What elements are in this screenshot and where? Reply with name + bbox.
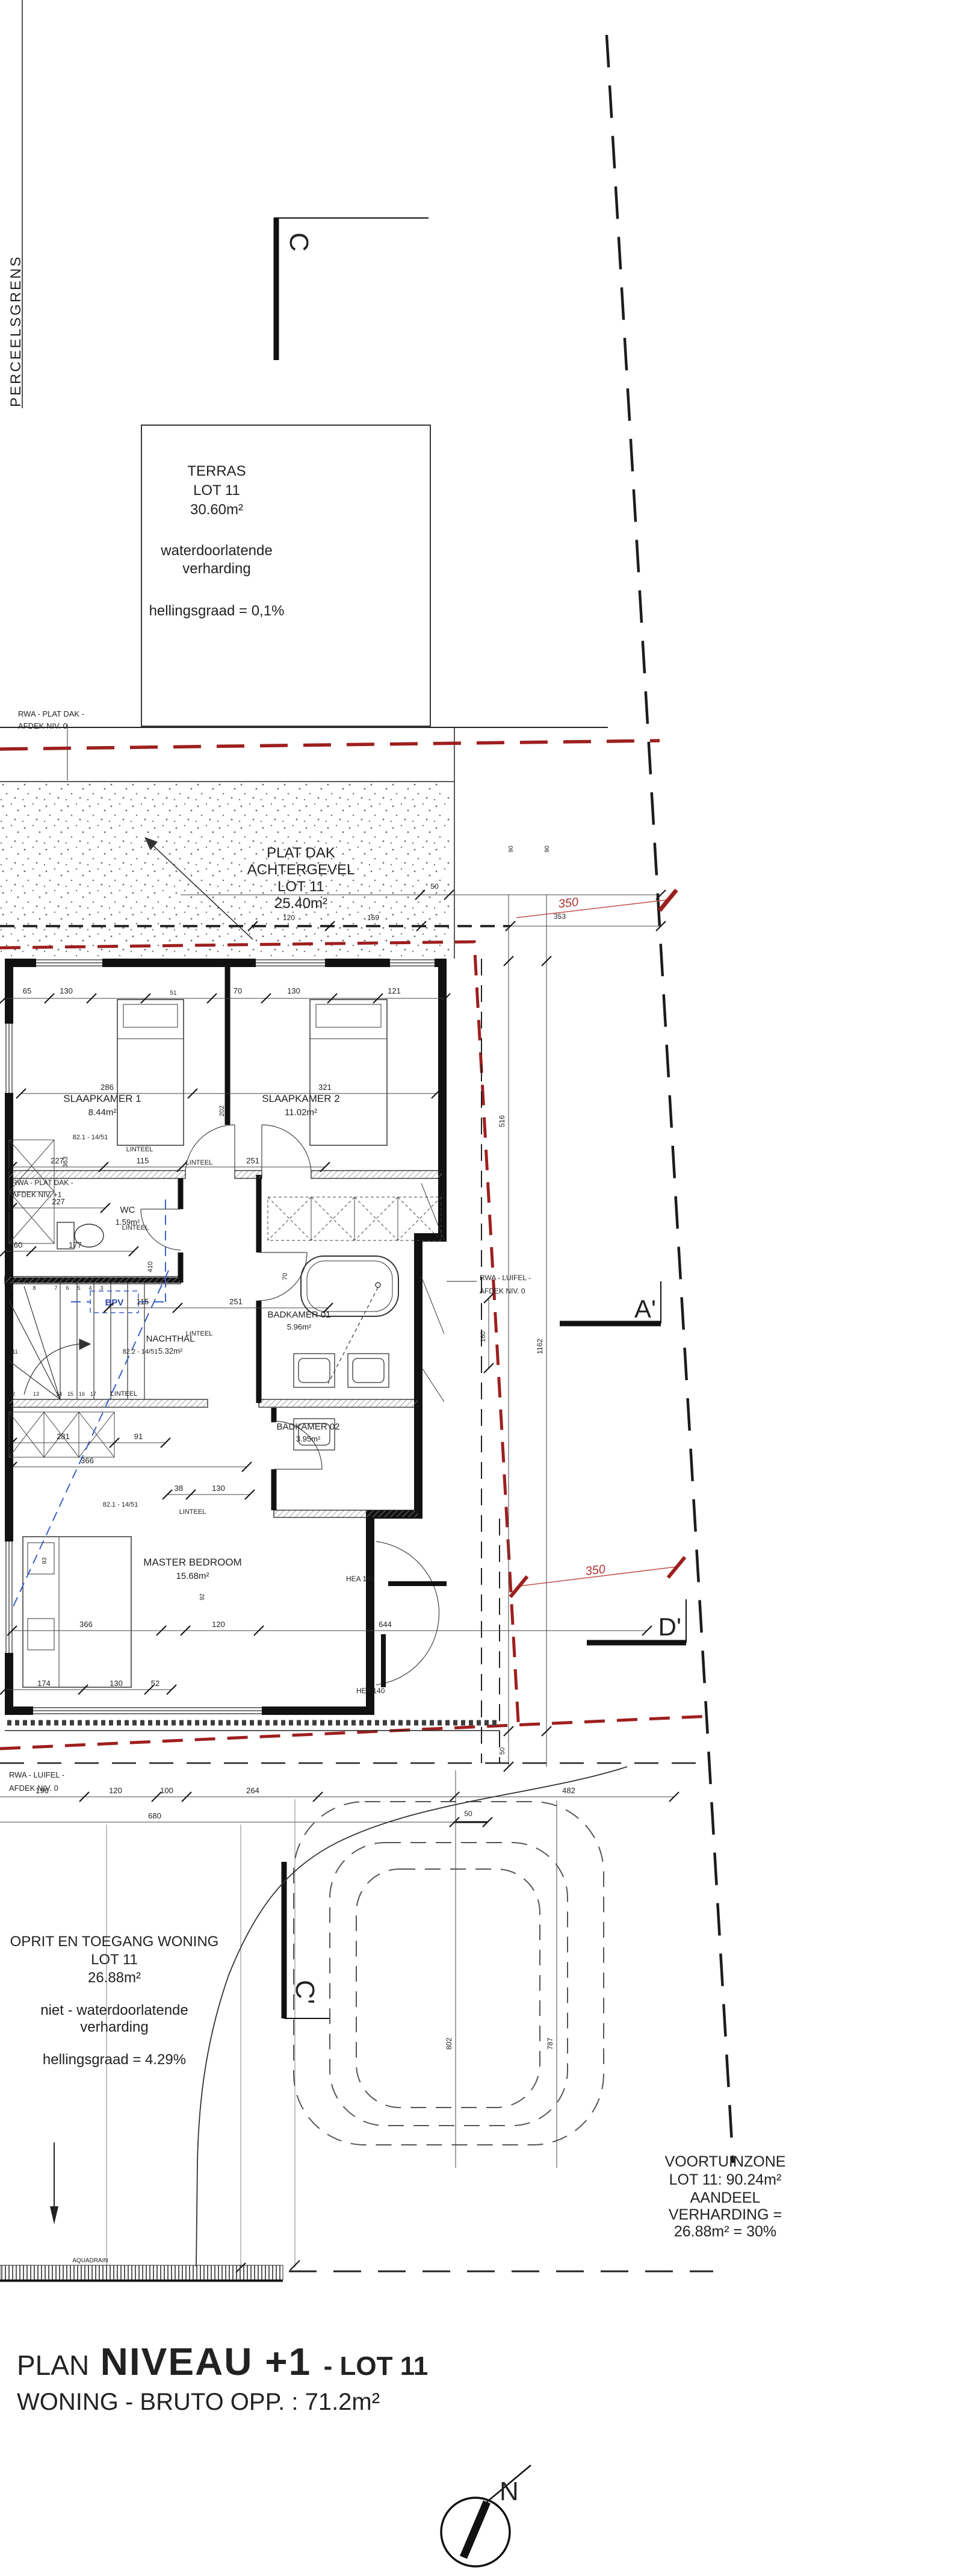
dim: 70 xyxy=(282,1273,289,1280)
exterior-walls xyxy=(4,957,442,1716)
oprit-area: 26.88m² xyxy=(88,1970,141,1986)
dim: 321 xyxy=(318,1083,332,1092)
dim: 51 xyxy=(170,990,177,997)
dim: 115 xyxy=(137,1156,149,1165)
room-wc: WC xyxy=(120,1205,135,1215)
voortuin-l1: VOORTUINZONE xyxy=(665,2153,786,2170)
property-dashed-line xyxy=(607,35,733,2163)
room-badkamer01: BADKAMER 01 xyxy=(267,1310,330,1320)
room-badkamer01-area: 5.96m² xyxy=(287,1322,312,1331)
bed-slaapkamer2 xyxy=(310,1000,387,1145)
dim: 50 xyxy=(430,882,439,891)
linteel-1: LINTEEL xyxy=(126,1146,153,1153)
sheet-title: PLAN NIVEAU +1 - LOT 11 xyxy=(17,2340,428,2383)
red-dim-350-upper: 350 xyxy=(516,890,676,918)
stair-num: 5 xyxy=(77,1285,80,1291)
linteel-3: LINTEEL xyxy=(122,1224,149,1231)
dim: 160 xyxy=(480,1331,487,1342)
aquadrain-strip xyxy=(0,2265,283,2280)
red-dim-350-lower: 350 xyxy=(510,1557,685,1597)
dim: 281 xyxy=(57,1432,70,1441)
red-350-upper: 350 xyxy=(558,895,579,910)
platdak-lot: LOT 11 xyxy=(277,879,324,895)
dim: 366 xyxy=(81,1456,94,1465)
terras-lot: LOT 11 xyxy=(193,482,240,499)
title-prefix: PLAN xyxy=(17,2350,89,2381)
oprit-note1: niet - waterdoorlatende xyxy=(40,2002,188,2018)
dim: 91 xyxy=(134,1432,143,1441)
title-suffix: - LOT 11 xyxy=(324,2351,429,2381)
dim: 177 xyxy=(69,1240,82,1249)
stair-num: 15 xyxy=(67,1391,73,1397)
stair-num: 13 xyxy=(33,1391,39,1397)
dim: 93 xyxy=(42,1557,48,1564)
hea-label-2: HEA 140 xyxy=(356,1687,385,1695)
dim: 130 xyxy=(110,1679,123,1688)
stair-num: 17 xyxy=(90,1391,96,1397)
dim: 169 xyxy=(367,913,379,922)
dim: 264 xyxy=(246,1786,259,1795)
stair-direction-arrow xyxy=(79,1339,90,1349)
terras-note2: verharding xyxy=(182,561,250,577)
stair-num: 14 xyxy=(56,1391,62,1397)
voortuin-l4: VERHARDING = xyxy=(669,2206,782,2223)
red-350-lower: 350 xyxy=(584,1563,606,1578)
floor-plan-canvas: PERCEELSGRENS C TERRAS LOT 11 30.60m² wa… xyxy=(0,0,975,2576)
rwa-luifel-bottom-1: RWA - LUIFEL - xyxy=(9,1770,64,1779)
dim: 52 xyxy=(151,1679,159,1688)
oprit-lot: LOT 11 xyxy=(91,1952,138,1968)
room-slaapkamer1: SLAAPKAMER 1 xyxy=(63,1093,141,1104)
platdak-area: 25.40m² xyxy=(274,895,327,912)
room-slaapkamer2: SLAAPKAMER 2 xyxy=(262,1093,339,1104)
bpv-label: BPV xyxy=(105,1298,124,1308)
oprit-note2: verharding xyxy=(80,2019,148,2035)
platdak-name: PLAT DAK xyxy=(267,845,335,861)
sheet-subtitle: WONING - BRUTO OPP. : 71.2m² xyxy=(17,2389,380,2415)
terras-name: TERRAS xyxy=(187,463,246,479)
level-mark-1: 82.1 - 14/51 xyxy=(73,1134,108,1141)
dim: 115 xyxy=(137,1297,149,1306)
linteel-4: LINTEEL xyxy=(186,1330,213,1337)
dim: 227 xyxy=(52,1197,65,1206)
driveway-edge-curve xyxy=(196,1767,627,2266)
section-letter-c: C xyxy=(284,232,314,252)
voortuin-l3: AANDEEL xyxy=(690,2189,761,2206)
dim: 482 xyxy=(562,1786,575,1795)
rwa-niv1-line1: RWA - PLAT DAK - xyxy=(12,1178,73,1187)
dim: 196 xyxy=(36,1786,49,1795)
north-label: N xyxy=(500,2477,519,2506)
stair-num: 8 xyxy=(32,1285,36,1291)
stair-num: 3 xyxy=(100,1285,103,1291)
rwa-luifel-right-1: RWA - LUIFEL - xyxy=(480,1274,531,1282)
interior-walls xyxy=(5,963,274,1510)
perceelsgrens-label: PERCEELSGRENS xyxy=(8,255,24,407)
section-letter-d-prime: D' xyxy=(658,1613,681,1641)
level-mark-3: 82.1 - 14/51 xyxy=(103,1501,138,1508)
voortuin-l2: LOT 11: 90.24m² xyxy=(669,2171,782,2188)
terras-note1: waterdoorlatende xyxy=(160,543,272,559)
dim: 90 xyxy=(508,845,515,853)
slope-arrow xyxy=(50,2142,58,2224)
dim: 50 xyxy=(464,1809,472,1818)
level-mark-2: 82.2 - 14/51 xyxy=(123,1348,158,1355)
title-main: NIVEAU +1 xyxy=(101,2340,312,2383)
rwa-top-line2: AFDEK NIV. 0 xyxy=(18,721,67,730)
turning-template xyxy=(294,1802,604,2145)
hea-label-1: HEA 140 xyxy=(346,1575,375,1583)
plan-sheet: PERCEELSGRENS C TERRAS LOT 11 30.60m² wa… xyxy=(0,0,975,2576)
room-badkamer02: BADKAMER 02 xyxy=(276,1422,339,1432)
linteel-5: LINTEEL xyxy=(111,1390,138,1398)
dim: 353 xyxy=(554,912,566,921)
room-slaapkamer1-area: 8.44m² xyxy=(88,1107,117,1118)
rwa-top-line1: RWA - PLAT DAK - xyxy=(18,709,84,718)
flat-roof-region xyxy=(0,724,608,959)
room-nachthal-area: 5.32m² xyxy=(158,1346,183,1355)
dim: 100 xyxy=(160,1786,173,1795)
oprit-labels: OPRIT EN TOEGANG WONING LOT 11 26.88m² n… xyxy=(10,1934,219,2068)
room-master: MASTER BEDROOM xyxy=(143,1557,241,1568)
dim: 366 xyxy=(79,1620,93,1629)
stair-num: 12 xyxy=(9,1391,15,1397)
room-master-area: 15.68m² xyxy=(176,1571,209,1581)
dim: 174 xyxy=(37,1679,51,1688)
closets xyxy=(9,1140,441,1457)
platdak-sub: ACHTERGEVEL xyxy=(247,862,355,878)
stair-num: 9 xyxy=(10,1285,13,1291)
dim: 60 xyxy=(14,1240,22,1249)
section-letter-c-prime: C' xyxy=(290,1980,320,2004)
stair-num: 11 xyxy=(12,1349,17,1355)
dim: 251 xyxy=(246,1156,259,1165)
room-slaapkamer2-area: 11.02m² xyxy=(285,1107,317,1118)
dim: 120 xyxy=(283,913,295,922)
dim: 286 xyxy=(101,1083,114,1092)
dim: 410 xyxy=(147,1262,154,1272)
dim: 70 xyxy=(234,986,242,995)
dim: 227 xyxy=(51,1156,64,1165)
street-edge xyxy=(0,2265,713,2281)
dim: 121 xyxy=(388,986,401,995)
dim: 516 xyxy=(498,1115,506,1127)
staircase xyxy=(9,1283,144,1399)
dim: 644 xyxy=(379,1620,392,1629)
room-badkamer02-area: 3.95m² xyxy=(296,1434,321,1443)
stair-num: 6 xyxy=(66,1285,69,1291)
stair-num: 16 xyxy=(79,1391,85,1397)
window-band-bottom xyxy=(33,1705,262,1716)
linteel-6: LINTEEL xyxy=(179,1508,206,1516)
dim: 251 xyxy=(229,1297,243,1306)
voortuin-labels: VOORTUINZONE LOT 11: 90.24m² AANDEEL VER… xyxy=(665,2153,786,2240)
dim: 90 xyxy=(544,845,551,853)
dim: 65 xyxy=(23,986,31,995)
dim: 202 xyxy=(218,1106,226,1116)
terras-labels: TERRAS LOT 11 30.60m² waterdoorlatende v… xyxy=(149,463,285,619)
dim: 680 xyxy=(148,1811,161,1820)
stair-num: 4 xyxy=(88,1285,91,1291)
dim: 50 xyxy=(499,1747,506,1755)
stair-num: 7 xyxy=(54,1285,57,1291)
terras-slope: hellingsgraad = 0,1% xyxy=(149,603,285,619)
oprit-slope: hellingsgraad = 4.29% xyxy=(43,2052,186,2068)
dim: 120 xyxy=(109,1786,122,1795)
oprit-name: OPRIT EN TOEGANG WONING xyxy=(10,1934,219,1950)
dim: 130 xyxy=(212,1484,225,1493)
section-letter-a-prime: A' xyxy=(634,1295,656,1323)
voortuin-l5: 26.88m² = 30% xyxy=(674,2223,776,2240)
dim: 92 xyxy=(199,1593,206,1601)
terras-area: 30.60m² xyxy=(190,502,243,518)
dim: 130 xyxy=(60,986,73,995)
dim: 38 xyxy=(175,1484,183,1493)
aquadrain-label: AQUADRAIN xyxy=(72,2257,108,2264)
rwa-luifel-bottom-2: AFDEK NIV. 0 xyxy=(9,1784,58,1793)
dim: 1162 xyxy=(536,1339,544,1354)
bed-master xyxy=(23,1537,131,1687)
linteel-2: LINTEEL xyxy=(186,1159,213,1166)
site-boundaries xyxy=(22,0,733,2163)
bed-slaapkamer1 xyxy=(117,1000,184,1145)
dim: 130 xyxy=(287,986,300,995)
dim: 802 xyxy=(445,2038,453,2050)
dim: 120 xyxy=(212,1620,225,1629)
dim: 787 xyxy=(546,2038,554,2050)
rwa-luifel-right-2: AFDEK NIV. 0 xyxy=(480,1287,525,1295)
